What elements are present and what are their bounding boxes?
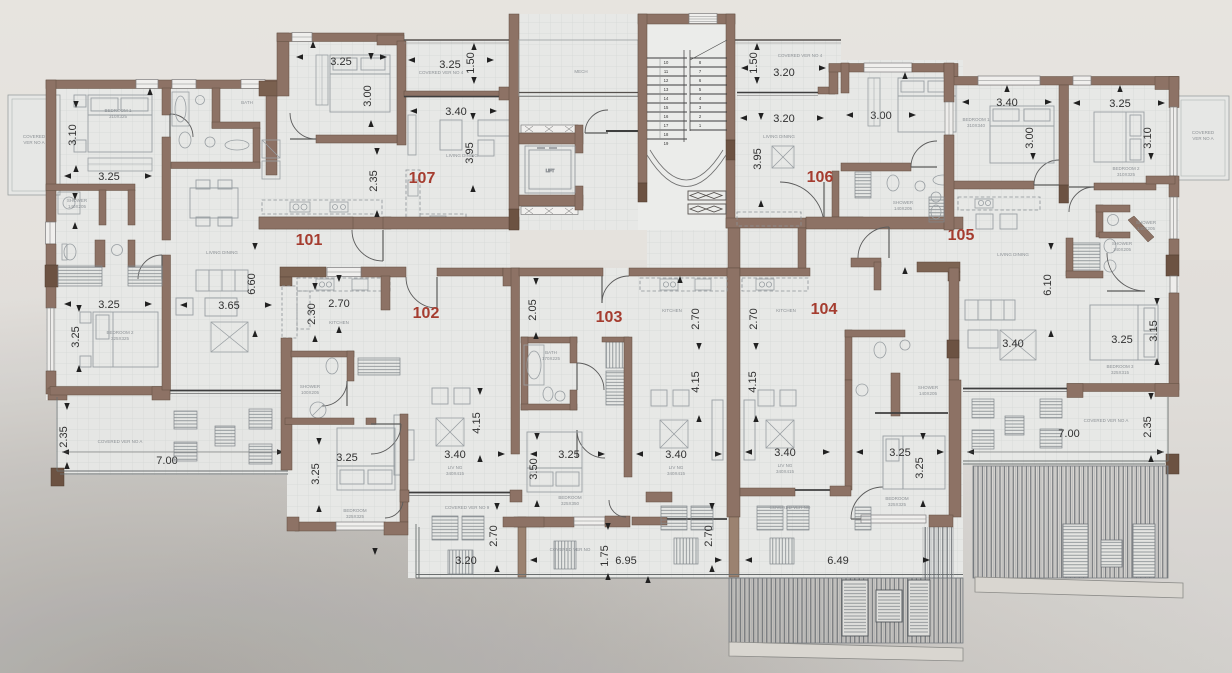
svg-text:310X325: 310X325 (109, 114, 128, 119)
svg-text:3.15: 3.15 (1148, 320, 1160, 341)
svg-text:SHOWER: SHOWER (300, 384, 321, 389)
svg-text:310X325: 310X325 (1117, 172, 1136, 177)
svg-text:MECH: MECH (574, 69, 587, 74)
svg-text:3.40: 3.40 (665, 449, 686, 461)
svg-text:19: 19 (664, 141, 669, 146)
svg-text:3.40: 3.40 (774, 447, 795, 459)
svg-text:KITCHEN: KITCHEN (329, 320, 349, 325)
svg-text:3.25: 3.25 (914, 457, 926, 478)
svg-text:140X205: 140X205 (1113, 247, 1132, 252)
svg-text:SHOWER: SHOWER (67, 198, 88, 203)
svg-text:3.40: 3.40 (1002, 338, 1023, 350)
svg-text:COVERED: COVERED (1192, 130, 1215, 135)
svg-text:3.40: 3.40 (445, 106, 466, 118)
svg-text:3.25: 3.25 (98, 171, 119, 183)
svg-text:325X325: 325X325 (888, 502, 907, 507)
svg-text:BEDROOM 2: BEDROOM 2 (1112, 166, 1140, 171)
svg-text:4.15: 4.15 (747, 371, 759, 392)
svg-text:3.25: 3.25 (330, 56, 351, 68)
svg-text:16: 16 (664, 114, 669, 119)
svg-text:3.25: 3.25 (439, 59, 460, 71)
svg-text:325X315: 325X315 (1111, 370, 1130, 375)
svg-text:COVERED VER NO 4: COVERED VER NO 4 (778, 53, 823, 58)
svg-text:LIVING DINING: LIVING DINING (997, 252, 1029, 257)
svg-text:SHOWER: SHOWER (918, 385, 939, 390)
svg-text:COVERED VER NO A: COVERED VER NO A (98, 439, 143, 444)
svg-text:BATH: BATH (545, 350, 557, 355)
svg-text:LIV NG: LIV NG (778, 463, 793, 468)
svg-text:SHOWER: SHOWER (1136, 220, 1157, 225)
svg-text:1.75: 1.75 (599, 545, 611, 566)
svg-text:104: 104 (811, 301, 838, 318)
svg-text:3.10: 3.10 (67, 124, 79, 145)
svg-text:325X325: 325X325 (111, 336, 130, 341)
svg-text:3.25: 3.25 (1109, 98, 1130, 110)
svg-text:3.00: 3.00 (362, 85, 374, 106)
svg-text:106: 106 (807, 169, 834, 186)
svg-text:BEDROOM: BEDROOM (885, 496, 909, 501)
svg-text:17: 17 (664, 123, 669, 128)
svg-text:4.15: 4.15 (690, 371, 702, 392)
svg-text:6.10: 6.10 (1042, 274, 1054, 295)
svg-text:2.70: 2.70 (748, 308, 760, 329)
svg-text:BEDROOM 3: BEDROOM 3 (1106, 364, 1134, 369)
svg-text:3.25: 3.25 (336, 452, 357, 464)
svg-text:3.40: 3.40 (444, 449, 465, 461)
svg-text:14: 14 (664, 96, 669, 101)
svg-text:1.50: 1.50 (748, 52, 760, 73)
svg-text:3.25: 3.25 (70, 326, 82, 347)
svg-text:2.30: 2.30 (306, 303, 318, 324)
svg-text:6.60: 6.60 (246, 273, 258, 294)
svg-text:340X415: 340X415 (446, 471, 465, 476)
svg-text:COVERED: COVERED (23, 134, 46, 139)
svg-text:2.70: 2.70 (328, 298, 349, 310)
svg-text:11: 11 (664, 69, 669, 74)
svg-text:101: 101 (296, 232, 323, 249)
svg-text:100X205: 100X205 (301, 390, 320, 395)
svg-text:3.25: 3.25 (310, 463, 322, 484)
svg-text:BEDROOM: BEDROOM (343, 508, 367, 513)
svg-text:170X225: 170X225 (542, 356, 561, 361)
svg-text:340X415: 340X415 (776, 469, 795, 474)
svg-text:3.25: 3.25 (98, 299, 119, 311)
svg-text:6.95: 6.95 (615, 555, 636, 567)
svg-text:LIVING DINING: LIVING DINING (206, 250, 238, 255)
svg-text:VER NO A: VER NO A (1192, 136, 1213, 141)
svg-text:3.00: 3.00 (870, 110, 891, 122)
svg-text:3.25: 3.25 (558, 449, 579, 461)
svg-text:107: 107 (409, 170, 436, 187)
svg-text:3.25: 3.25 (889, 447, 910, 459)
svg-text:103: 103 (596, 309, 623, 326)
svg-text:3.00: 3.00 (1024, 127, 1036, 148)
svg-text:2.35: 2.35 (368, 170, 380, 191)
svg-text:13: 13 (664, 87, 669, 92)
svg-text:102: 102 (413, 305, 440, 322)
svg-text:LIV NG: LIV NG (669, 465, 684, 470)
svg-text:3.25: 3.25 (1111, 334, 1132, 346)
svg-text:3.20: 3.20 (773, 67, 794, 79)
svg-text:LIV NG: LIV NG (448, 465, 463, 470)
svg-text:140X205: 140X205 (1137, 226, 1156, 231)
svg-text:COVERED VER NO: COVERED VER NO (550, 547, 591, 552)
svg-text:140X205: 140X205 (919, 391, 938, 396)
svg-text:COVERED VER NO 9: COVERED VER NO 9 (445, 505, 490, 510)
svg-text:3.20: 3.20 (455, 555, 476, 567)
svg-text:12: 12 (664, 78, 669, 83)
svg-text:140X205: 140X205 (894, 206, 913, 211)
svg-text:BATH: BATH (241, 100, 253, 105)
svg-text:BEDROOM 1: BEDROOM 1 (104, 108, 132, 113)
svg-text:10: 10 (664, 60, 669, 65)
svg-text:7.00: 7.00 (1058, 428, 1079, 440)
svg-text:3.50: 3.50 (528, 458, 540, 479)
svg-text:BEDROOM: BEDROOM (558, 495, 582, 500)
svg-text:LIVING DINING: LIVING DINING (446, 153, 478, 158)
svg-text:SHOWER: SHOWER (893, 200, 914, 205)
svg-text:3.40: 3.40 (996, 97, 1017, 109)
svg-text:18: 18 (664, 132, 669, 137)
svg-text:2.05: 2.05 (527, 299, 539, 320)
svg-text:KITCHEN: KITCHEN (662, 308, 682, 313)
svg-text:KITCHEN: KITCHEN (776, 308, 796, 313)
svg-text:15: 15 (664, 105, 669, 110)
svg-text:COVERED VER NO A: COVERED VER NO A (1084, 418, 1129, 423)
svg-text:340X415: 340X415 (667, 471, 686, 476)
svg-text:SHOWER: SHOWER (1112, 241, 1133, 246)
svg-text:3.65: 3.65 (218, 300, 239, 312)
svg-text:140X205: 140X205 (68, 204, 87, 209)
svg-text:325X350: 325X350 (561, 501, 580, 506)
svg-text:2.35: 2.35 (1142, 416, 1154, 437)
svg-text:2.70: 2.70 (690, 308, 702, 329)
svg-text:BEDROOM 2: BEDROOM 2 (106, 330, 134, 335)
svg-text:3.95: 3.95 (752, 148, 764, 169)
svg-text:COVERED VER NO: COVERED VER NO (770, 505, 811, 510)
svg-text:VER NO A: VER NO A (23, 140, 44, 145)
svg-text:2.70: 2.70 (488, 525, 500, 546)
svg-text:3.10: 3.10 (1142, 127, 1154, 148)
svg-text:3.20: 3.20 (773, 113, 794, 125)
svg-text:BEDROOM 1: BEDROOM 1 (962, 117, 990, 122)
svg-text:1.50: 1.50 (465, 52, 477, 73)
svg-text:4.15: 4.15 (471, 412, 483, 433)
svg-text:6.49: 6.49 (827, 555, 848, 567)
svg-text:LIVING DINING: LIVING DINING (763, 134, 795, 139)
svg-text:2.35: 2.35 (58, 426, 70, 447)
svg-text:LIFT: LIFT (546, 168, 555, 173)
svg-text:310X340: 310X340 (967, 123, 986, 128)
svg-text:325X325: 325X325 (346, 514, 365, 519)
